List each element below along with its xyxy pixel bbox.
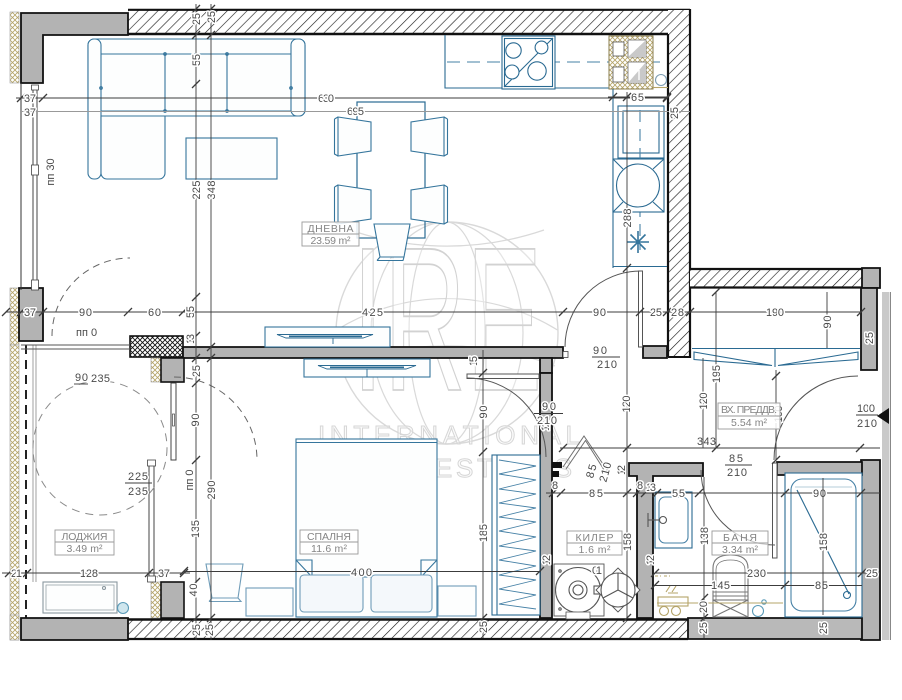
svg-text:195: 195 xyxy=(711,365,723,383)
svg-text:90: 90 xyxy=(542,401,556,413)
svg-text:20: 20 xyxy=(698,601,710,613)
svg-text:695: 695 xyxy=(347,106,364,118)
svg-text:90: 90 xyxy=(75,372,88,384)
svg-text:90: 90 xyxy=(813,488,826,500)
svg-text:225: 225 xyxy=(128,471,148,483)
svg-text:138: 138 xyxy=(699,527,711,545)
svg-text:225: 225 xyxy=(191,181,203,200)
svg-text:25: 25 xyxy=(191,13,203,25)
svg-text:37: 37 xyxy=(24,93,36,105)
svg-text:210: 210 xyxy=(727,467,747,479)
svg-text:37: 37 xyxy=(158,568,170,580)
svg-text:28: 28 xyxy=(671,307,684,319)
svg-text:ЛОДЖИЯ: ЛОДЖИЯ xyxy=(62,531,108,543)
svg-text:85: 85 xyxy=(729,453,743,465)
svg-text:37: 37 xyxy=(24,107,36,119)
svg-text:158: 158 xyxy=(818,533,830,551)
svg-text:12: 12 xyxy=(616,465,628,475)
svg-text:25: 25 xyxy=(191,365,203,377)
svg-text:90: 90 xyxy=(593,307,606,319)
svg-text:85: 85 xyxy=(589,488,603,500)
svg-text:90: 90 xyxy=(822,316,834,329)
svg-text:5.54 m²: 5.54 m² xyxy=(731,417,768,429)
svg-text:37: 37 xyxy=(24,307,36,319)
svg-text:25: 25 xyxy=(204,624,216,636)
svg-text:21: 21 xyxy=(11,568,22,580)
svg-text:11.6 m²: 11.6 m² xyxy=(311,543,348,555)
svg-text:190: 190 xyxy=(766,307,784,319)
svg-text:пп 30: пп 30 xyxy=(45,158,57,185)
svg-text:120: 120 xyxy=(698,393,710,410)
svg-text:210: 210 xyxy=(857,418,877,430)
svg-text:235: 235 xyxy=(91,373,110,385)
svg-text:290: 290 xyxy=(206,481,218,500)
svg-text:13: 13 xyxy=(185,334,197,344)
svg-text:25: 25 xyxy=(650,307,662,319)
svg-text:120: 120 xyxy=(621,396,633,413)
svg-text:630: 630 xyxy=(318,93,334,105)
svg-text:25: 25 xyxy=(669,107,681,119)
svg-text:230: 230 xyxy=(747,568,766,580)
svg-text:40: 40 xyxy=(188,584,200,597)
svg-text:145: 145 xyxy=(711,580,730,592)
svg-text:90: 90 xyxy=(190,414,202,427)
svg-text:23.59 m²: 23.59 m² xyxy=(311,235,352,247)
svg-text:185: 185 xyxy=(478,524,490,542)
svg-text:ДНЕВНА: ДНЕВНА xyxy=(308,223,354,235)
svg-text:348: 348 xyxy=(206,181,218,200)
svg-text:25: 25 xyxy=(478,621,490,633)
svg-text:КИЛЕР: КИЛЕР xyxy=(576,532,614,544)
svg-text:135: 135 xyxy=(190,520,202,538)
svg-text:12: 12 xyxy=(541,555,553,565)
svg-text:13: 13 xyxy=(646,482,656,494)
svg-text:СПАЛНЯ: СПАЛНЯ xyxy=(307,531,351,543)
svg-text:128: 128 xyxy=(80,568,98,580)
svg-text:65: 65 xyxy=(631,92,644,104)
svg-text:3.34 m²: 3.34 m² xyxy=(722,544,759,556)
svg-text:25: 25 xyxy=(864,332,876,344)
svg-text:12: 12 xyxy=(645,555,657,565)
svg-text:90: 90 xyxy=(478,406,490,419)
svg-text:343: 343 xyxy=(697,436,716,448)
svg-text:25: 25 xyxy=(191,624,203,636)
svg-text:25: 25 xyxy=(818,622,830,634)
svg-text:25: 25 xyxy=(866,568,878,580)
svg-text:288: 288 xyxy=(622,209,634,228)
svg-text:158: 158 xyxy=(622,533,634,551)
svg-text:БАНЯ: БАНЯ xyxy=(723,532,757,544)
svg-text:60: 60 xyxy=(148,307,161,319)
svg-text:90: 90 xyxy=(593,345,607,357)
svg-text:55: 55 xyxy=(185,306,197,318)
svg-text:8: 8 xyxy=(552,480,558,492)
svg-text:55: 55 xyxy=(191,54,203,66)
svg-text:пп 0: пп 0 xyxy=(184,469,196,490)
svg-text:85: 85 xyxy=(815,580,828,592)
svg-text:1.6 m²: 1.6 m² xyxy=(579,544,612,556)
svg-text:3.49 m²: 3.49 m² xyxy=(67,543,104,555)
svg-text:210: 210 xyxy=(537,415,557,427)
svg-text:425: 425 xyxy=(362,307,383,319)
svg-text:пп 0: пп 0 xyxy=(76,327,97,339)
svg-text:ВХ. ПРЕДДВ.: ВХ. ПРЕДДВ. xyxy=(721,404,777,416)
svg-text:01: 01 xyxy=(592,565,602,577)
svg-text:235: 235 xyxy=(128,486,148,498)
svg-text:25: 25 xyxy=(698,622,710,634)
svg-text:8: 8 xyxy=(637,480,643,492)
svg-text:90: 90 xyxy=(79,307,92,319)
svg-text:25: 25 xyxy=(206,11,218,23)
svg-text:15: 15 xyxy=(468,356,480,366)
svg-text:400: 400 xyxy=(351,567,372,579)
svg-text:210: 210 xyxy=(597,359,617,371)
svg-text:100: 100 xyxy=(857,403,875,415)
svg-text:55: 55 xyxy=(672,488,685,500)
